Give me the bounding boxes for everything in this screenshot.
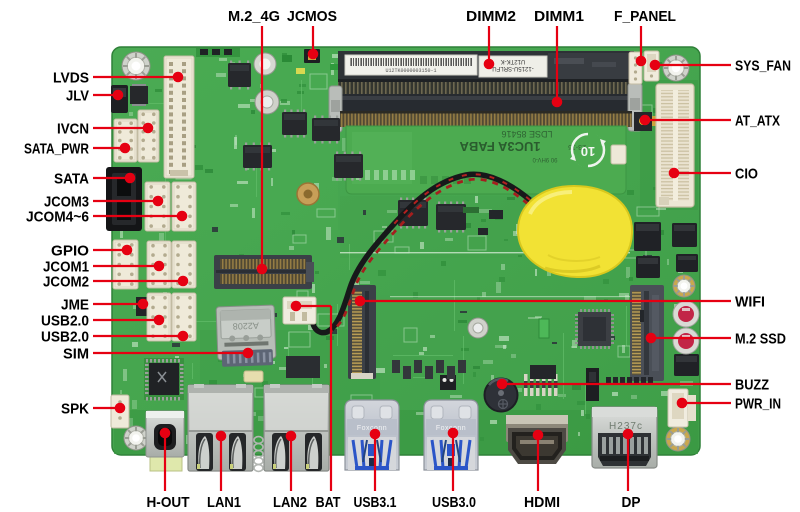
- svg-text:SATA_PWR: SATA_PWR: [24, 141, 89, 158]
- svg-text:USB3.0: USB3.0: [432, 494, 476, 511]
- svg-text:M.2_4G: M.2_4G: [228, 8, 280, 25]
- svg-text:M.2 SSD: M.2 SSD: [735, 331, 786, 348]
- svg-text:USB3.1: USB3.1: [354, 494, 397, 511]
- svg-text:JCMOS: JCMOS: [287, 8, 337, 25]
- svg-text:LAN2: LAN2: [273, 494, 307, 511]
- svg-text:U12TK0000003150-1: U12TK0000003150-1: [385, 68, 436, 74]
- svg-text:USB2.0: USB2.0: [41, 313, 89, 330]
- svg-text:JME: JME: [61, 297, 89, 314]
- svg-text:CIO: CIO: [735, 166, 758, 183]
- svg-text:PWR_IN: PWR_IN: [735, 396, 781, 413]
- svg-text:F_PANEL: F_PANEL: [614, 8, 676, 25]
- svg-text:DP: DP: [622, 494, 641, 511]
- svg-text:DIMM2: DIMM2: [466, 8, 516, 25]
- svg-text:SIM: SIM: [63, 346, 89, 363]
- svg-text:-1215U-SRLFU: -1215U-SRLFU: [492, 65, 533, 71]
- svg-text:DIMM1: DIMM1: [534, 8, 584, 25]
- svg-text:WIFI: WIFI: [735, 294, 765, 311]
- svg-text:JLV: JLV: [66, 88, 89, 105]
- svg-text:LDSE 85416: LDSE 85416: [501, 129, 552, 139]
- svg-text:H-OUT: H-OUT: [147, 494, 190, 511]
- svg-text:AT_ATX: AT_ATX: [735, 113, 780, 130]
- svg-text:GPIO: GPIO: [51, 243, 89, 260]
- svg-text:A2208: A2208: [233, 321, 259, 332]
- svg-text:BAT: BAT: [316, 494, 341, 511]
- svg-text:USB2.0: USB2.0: [41, 329, 89, 346]
- svg-text:IVCN: IVCN: [57, 121, 89, 138]
- svg-text:SATA: SATA: [54, 171, 89, 188]
- svg-text:LAN1: LAN1: [207, 494, 241, 511]
- svg-text:JCOM2: JCOM2: [43, 274, 89, 291]
- svg-text:BUZZ: BUZZ: [735, 377, 769, 394]
- svg-text:JCOM4~6: JCOM4~6: [26, 209, 89, 226]
- svg-text:SPK: SPK: [61, 401, 89, 418]
- svg-text:90 9HV-0: 90 9HV-0: [532, 156, 558, 162]
- svg-text:1UC3A FABA: 1UC3A FABA: [459, 139, 541, 154]
- svg-text:U12TK-K: U12TK-K: [501, 58, 526, 64]
- svg-text:SYS_FAN: SYS_FAN: [735, 58, 791, 75]
- svg-text:HDMI: HDMI: [524, 494, 560, 511]
- svg-text:10: 10: [581, 144, 595, 159]
- svg-text:LVDS: LVDS: [53, 70, 89, 87]
